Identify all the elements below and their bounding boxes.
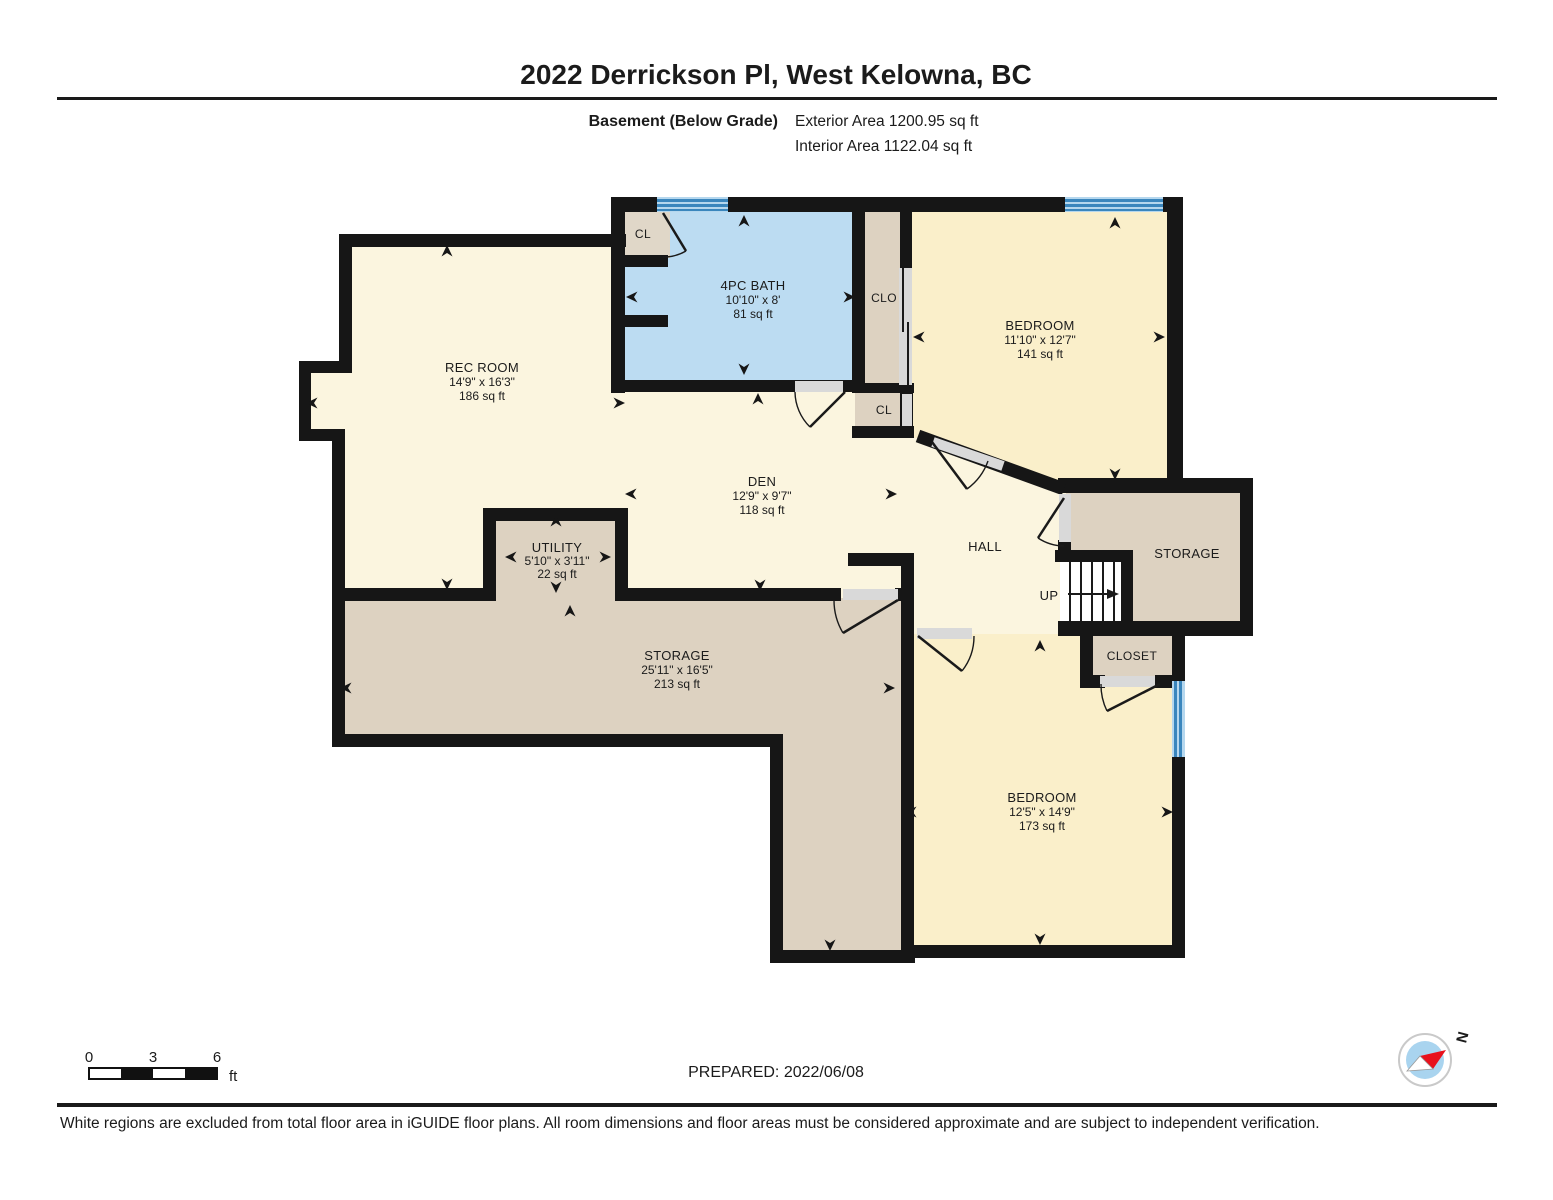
svg-text:UTILITY: UTILITY [532,540,583,555]
svg-text:12'5" x 14'9": 12'5" x 14'9" [1009,805,1075,819]
svg-text:173 sq ft: 173 sq ft [1019,819,1066,833]
clo-label: CLO [871,291,897,305]
footer-rule [57,1103,1497,1107]
bath-closet-label: CL [635,227,651,241]
compass-north-label: N [1453,1030,1472,1045]
bedroom-top-window [1065,197,1163,212]
svg-text:14'9" x 16'3": 14'9" x 16'3" [449,375,515,389]
footer: 0 3 6 ft PREPARED: 2022/06/08 N White re… [57,1030,1497,1132]
svg-text:REC ROOM: REC ROOM [445,360,519,375]
svg-text:BEDROOM: BEDROOM [1007,790,1076,805]
scale-tick-3: 3 [149,1049,157,1066]
scale-tick-6: 6 [213,1049,221,1066]
floorplan-canvas: 2022 Derrickson Pl, West Kelowna, BC Bas… [0,0,1553,1200]
exterior-area: Exterior Area 1200.95 sq ft [795,113,979,130]
svg-text:STORAGE: STORAGE [644,648,709,663]
svg-text:118 sq ft: 118 sq ft [739,503,785,517]
floor-label: Basement (Below Grade) [589,113,778,130]
scale-tick-0: 0 [85,1049,93,1066]
svg-text:25'11" x 16'5": 25'11" x 16'5" [641,663,713,677]
svg-text:213 sq ft: 213 sq ft [654,677,701,691]
svg-text:81 sq ft: 81 sq ft [733,307,773,321]
bath-window [657,197,728,212]
svg-text:141 sq ft: 141 sq ft [1017,347,1064,361]
scale-bar: 0 3 6 ft [85,1049,238,1085]
compass-icon: N [1399,1030,1473,1086]
storage-right-label: STORAGE [1154,546,1219,561]
stairs-up-label: UP [1040,588,1059,603]
svg-text:12'9" x 9'7": 12'9" x 9'7" [732,489,791,503]
svg-text:5'10" x 3'11": 5'10" x 3'11" [525,554,590,568]
disclaimer-text: White regions are excluded from total fl… [60,1115,1320,1132]
svg-text:4PC BATH: 4PC BATH [720,278,785,293]
page-title: 2022 Derrickson Pl, West Kelowna, BC [520,59,1031,90]
closet-label: CLOSET [1107,649,1158,663]
scale-unit: ft [229,1068,238,1085]
header: 2022 Derrickson Pl, West Kelowna, BC Bas… [57,59,1497,155]
svg-text:10'10" x 8': 10'10" x 8' [726,293,781,307]
svg-text:22 sq ft: 22 sq ft [537,567,577,581]
svg-text:BEDROOM: BEDROOM [1005,318,1074,333]
hall-label: HALL [968,539,1002,554]
svg-text:11'10" x 12'7": 11'10" x 12'7" [1004,333,1076,347]
hall-closet-label: CL [876,403,892,417]
prepared-date: PREPARED: 2022/06/08 [688,1064,864,1081]
floorplan-page: 2022 Derrickson Pl, West Kelowna, BC Bas… [0,0,1553,1200]
svg-text:DEN: DEN [748,474,776,489]
bedroom-bottom-window [1172,681,1185,757]
header-rule [57,97,1497,100]
interior-area: Interior Area 1122.04 sq ft [795,138,973,155]
svg-text:186 sq ft: 186 sq ft [459,389,506,403]
